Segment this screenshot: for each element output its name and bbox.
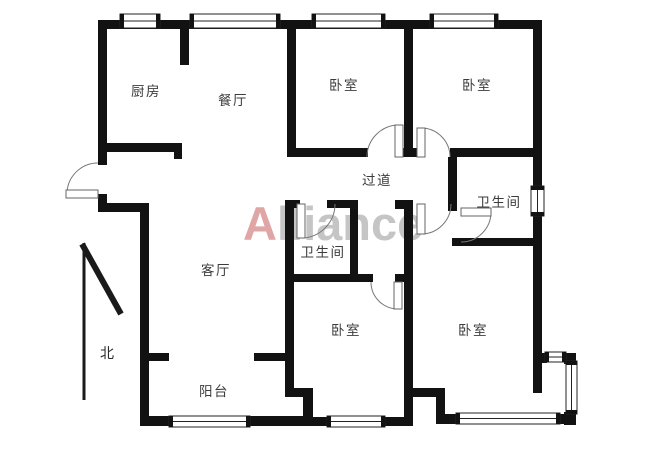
door-leaf xyxy=(417,204,425,234)
label-dining-room: 餐厅 xyxy=(218,93,248,108)
label-bedroom-bottom-middle: 卧室 xyxy=(331,322,361,338)
wall xyxy=(448,157,457,211)
label-balcony: 阳台 xyxy=(199,384,229,399)
window-end-cap xyxy=(456,413,460,424)
wall xyxy=(436,388,445,418)
window-end-cap xyxy=(312,14,316,28)
wall xyxy=(350,200,358,282)
window-bedroom-top-right xyxy=(430,14,498,28)
label-hallway: 过道 xyxy=(362,173,392,188)
label-bedroom-top-middle: 卧室 xyxy=(329,77,359,93)
wall xyxy=(285,274,373,282)
window-end-cap xyxy=(430,14,434,28)
wall xyxy=(383,417,405,426)
wall xyxy=(98,143,182,152)
wall xyxy=(140,416,171,426)
wall xyxy=(436,414,458,424)
wall xyxy=(248,416,311,426)
window-end-cap xyxy=(190,14,194,28)
label-bedroom-top-right: 卧室 xyxy=(462,77,492,93)
wall xyxy=(450,148,542,157)
door-leaf xyxy=(297,204,305,238)
window-end-cap xyxy=(169,416,173,427)
window-bedroom-bottom-right xyxy=(456,413,560,424)
label-bedroom-bottom-right: 卧室 xyxy=(458,322,488,338)
window-end-cap xyxy=(545,352,549,362)
wall xyxy=(285,200,294,392)
window-end-cap xyxy=(566,361,577,365)
floor-plan: Alliance北厨房餐厅卧室卧室过道卫生间卫生间客厅阳台卧室卧室 xyxy=(0,0,650,450)
window-bathroom-right xyxy=(531,186,544,216)
wall xyxy=(254,353,286,361)
label-living-room: 客厅 xyxy=(201,262,231,278)
wall xyxy=(395,200,413,209)
window-end-cap xyxy=(566,410,577,414)
window-end-cap xyxy=(531,186,544,190)
window-bedroom-top-middle xyxy=(312,14,385,28)
window-end-cap xyxy=(327,416,331,427)
wall xyxy=(180,20,189,65)
window-end-cap xyxy=(494,14,498,28)
window-end-cap xyxy=(381,14,385,28)
wall xyxy=(140,203,149,423)
wall xyxy=(148,353,169,361)
label-bathroom-center: 卫生间 xyxy=(301,245,346,260)
north-label: 北 xyxy=(100,346,114,362)
window-end-cap xyxy=(381,416,385,427)
wall xyxy=(174,150,182,159)
window-end-cap xyxy=(120,14,124,28)
window-bay-top xyxy=(545,352,566,362)
door-leaf xyxy=(394,282,402,309)
window-dining-top xyxy=(190,14,280,28)
door-leaf xyxy=(66,190,98,198)
window-kitchen-top xyxy=(120,14,160,28)
wall xyxy=(404,28,413,157)
window-end-cap xyxy=(156,14,160,28)
window-bay-right xyxy=(566,361,577,414)
window-end-cap xyxy=(246,416,250,427)
window-end-cap xyxy=(531,212,544,216)
window-bedroom-bottom-middle xyxy=(327,416,385,427)
label-bathroom-right: 卫生间 xyxy=(477,195,522,210)
door-leaf xyxy=(417,128,425,157)
wall xyxy=(287,28,296,157)
window-balcony xyxy=(169,416,250,427)
door-leaf xyxy=(395,125,403,157)
label-kitchen: 厨房 xyxy=(131,84,161,99)
wall xyxy=(287,148,368,157)
window-end-cap xyxy=(556,413,560,424)
floor-plan-canvas: Alliance北厨房餐厅卧室卧室过道卫生间卫生间客厅阳台卧室卧室 xyxy=(0,0,650,450)
watermark-prefix: A xyxy=(243,197,277,250)
window-end-cap xyxy=(276,14,280,28)
window-end-cap xyxy=(562,352,566,362)
